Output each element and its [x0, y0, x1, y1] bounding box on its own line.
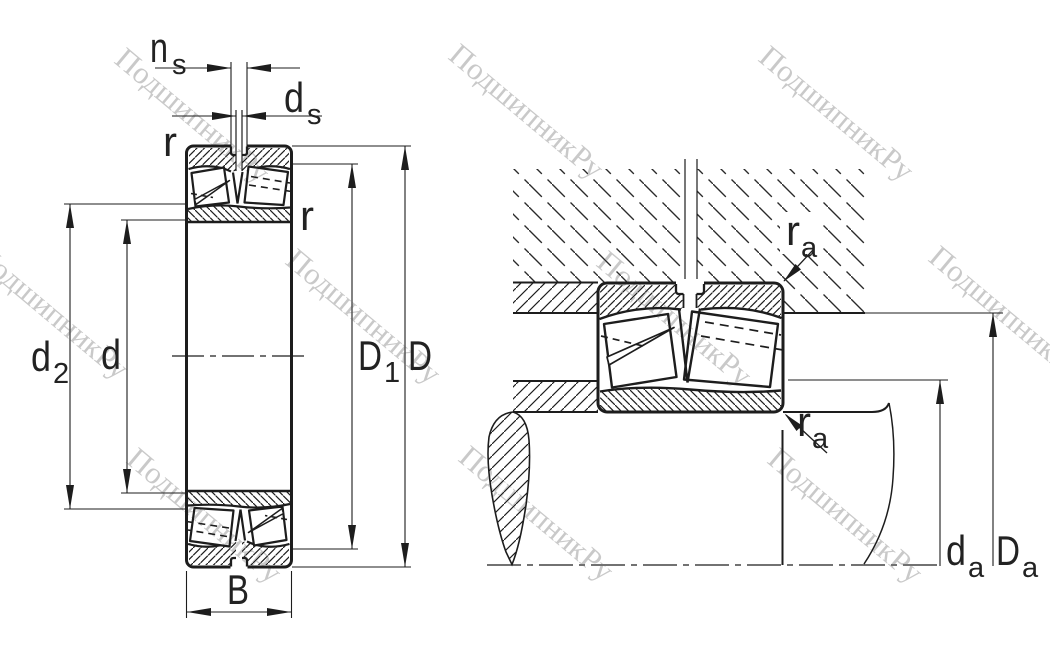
hole-channel	[685, 159, 697, 285]
watermark-text: ПодшипникРу	[762, 441, 931, 591]
groove-notch-mask	[676, 279, 704, 289]
label-ra-top-main: r	[786, 207, 800, 254]
bearing-technical-drawing: n s d s r r d 2 d D 1 D B r a r a d a D …	[0, 0, 1050, 650]
label-da-sub: a	[968, 552, 985, 584]
label-r-side: r	[300, 192, 314, 239]
label-r-top: r	[163, 118, 177, 165]
label-d2-main: d	[31, 333, 51, 380]
drawing-canvas: n s d s r r d 2 d D 1 D B r a r a d a D …	[0, 0, 1050, 650]
cover-ring-hatch	[513, 283, 598, 314]
watermark-text: ПодшипникРу	[453, 439, 622, 589]
label-Da-main: D	[996, 527, 1020, 574]
label-ra-bottom-sub: a	[812, 423, 829, 455]
label-ds-main: d	[284, 74, 304, 121]
label-Da-sub: a	[1022, 552, 1039, 584]
shaft-shoulder-hatch	[513, 381, 598, 412]
watermark-text: ПодшипникРу	[443, 37, 612, 187]
label-da-main: d	[946, 527, 966, 574]
label-ra-bottom-main: r	[797, 398, 811, 445]
label-ds-sub: s	[307, 99, 322, 131]
label-d2-sub: 2	[53, 358, 69, 390]
label-ra-top-sub: a	[801, 232, 818, 264]
watermark-text: ПодшипникРу	[753, 39, 922, 189]
label-B: B	[227, 566, 249, 613]
